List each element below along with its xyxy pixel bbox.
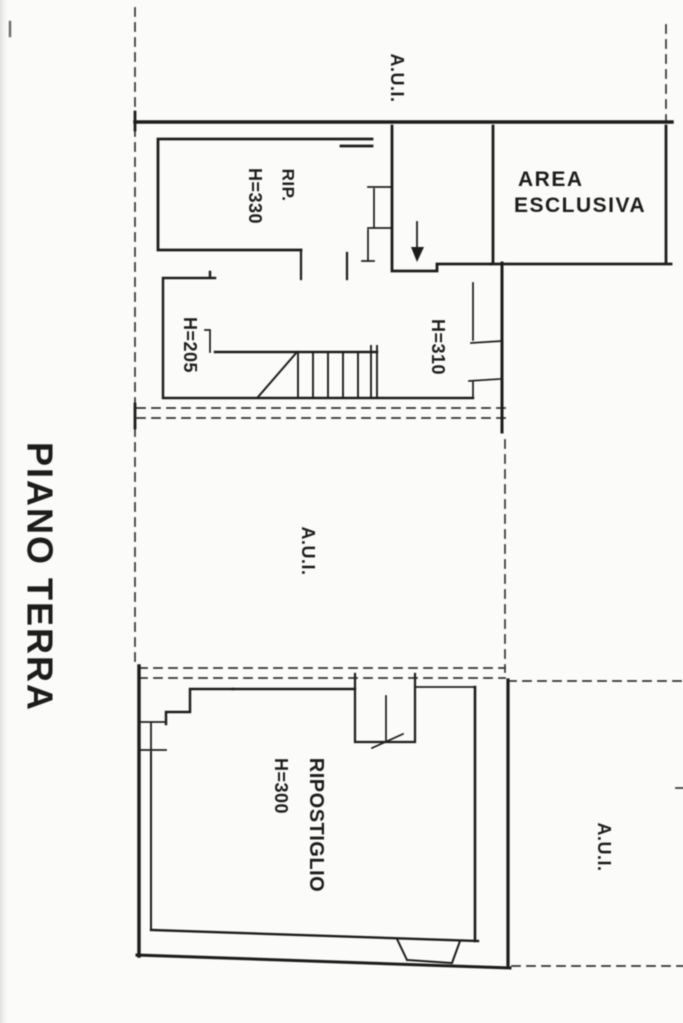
label-h310: H=310 [428,319,448,375]
label-aui-bottom-right: A.U.I. [594,822,614,871]
label-area-esclusiva-line1: AREA [518,168,584,191]
floor-plan-drawing: A.U.I. RIP. H=330 AREA ESCLUSIVA H=205 H… [0,0,683,1023]
label-rip: RIP. [279,169,298,202]
label-aui-middle: A.U.I. [298,526,318,575]
label-ripostiglio: RIPOSTIGLIO [305,758,327,892]
label-h205: H=205 [180,317,200,373]
paper-background [0,0,683,1023]
scanned-floor-plan-page: A.U.I. RIP. H=330 AREA ESCLUSIVA H=205 H… [0,0,683,1023]
label-rip-height: H=330 [245,168,265,224]
label-area-esclusiva-line2: ESCLUSIVA [514,194,646,217]
scan-edge-shadow [0,0,10,1023]
page-title: PIANO TERRA [20,442,61,712]
label-h300: H=300 [271,758,291,814]
label-aui-top: A.U.I. [387,53,407,102]
